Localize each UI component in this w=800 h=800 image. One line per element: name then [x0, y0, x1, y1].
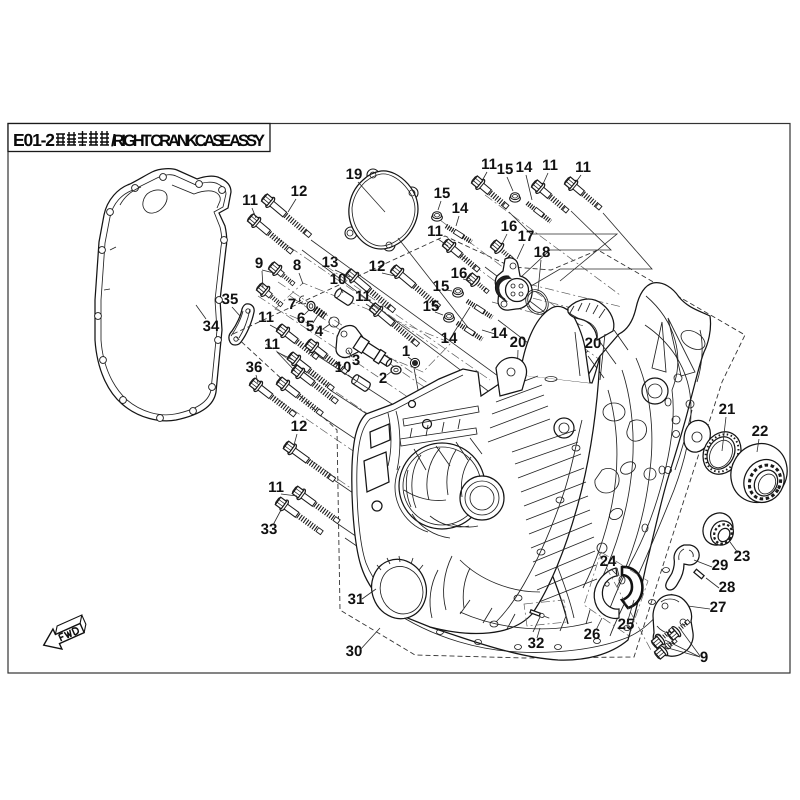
svg-text:12: 12 [291, 183, 308, 200]
svg-text:12: 12 [291, 418, 308, 435]
svg-text:12: 12 [369, 258, 386, 275]
svg-text:29: 29 [712, 557, 729, 574]
svg-text:14: 14 [516, 159, 533, 176]
svg-text:25: 25 [618, 616, 635, 633]
svg-text:11: 11 [575, 159, 591, 176]
svg-text:21: 21 [719, 401, 736, 418]
svg-text:15: 15 [497, 161, 514, 178]
svg-text:7: 7 [288, 296, 296, 313]
svg-text:11: 11 [268, 479, 284, 496]
svg-text:14: 14 [441, 330, 458, 347]
svg-text:32: 32 [528, 635, 545, 652]
svg-text:22: 22 [752, 423, 769, 440]
svg-text:E01-2: E01-2 [13, 130, 55, 150]
svg-text:20: 20 [510, 334, 527, 351]
svg-text:14: 14 [452, 200, 469, 217]
svg-text:17: 17 [518, 228, 535, 245]
svg-text:4: 4 [315, 323, 324, 340]
svg-text:28: 28 [719, 579, 736, 596]
svg-text:19: 19 [346, 166, 363, 183]
svg-text:33: 33 [261, 521, 278, 538]
svg-text:8: 8 [293, 257, 301, 274]
svg-text:11: 11 [258, 309, 274, 326]
svg-text:30: 30 [346, 643, 363, 660]
svg-text:24: 24 [600, 553, 617, 570]
svg-text:34: 34 [203, 318, 220, 335]
svg-text:35: 35 [222, 291, 239, 308]
svg-text:9: 9 [255, 255, 263, 272]
svg-text:13: 13 [322, 254, 339, 271]
svg-text:11: 11 [242, 192, 258, 209]
svg-text:5: 5 [306, 318, 314, 335]
svg-text:15: 15 [434, 185, 451, 202]
svg-text:27: 27 [710, 599, 727, 616]
svg-text:11: 11 [481, 156, 497, 173]
svg-text:6: 6 [297, 310, 305, 327]
svg-text:3: 3 [352, 352, 360, 369]
svg-text:9: 9 [700, 649, 708, 666]
svg-text:10: 10 [330, 271, 347, 288]
svg-text:11: 11 [427, 223, 443, 240]
svg-text:18: 18 [534, 244, 551, 261]
svg-text:2: 2 [379, 370, 387, 387]
svg-text:11: 11 [542, 157, 558, 174]
svg-text:36: 36 [246, 359, 263, 376]
svg-text:/RIGHT CRANKCASE ASSY: /RIGHT CRANKCASE ASSY [111, 132, 265, 150]
svg-text:26: 26 [584, 626, 601, 643]
svg-text:31: 31 [348, 591, 365, 608]
svg-text:11: 11 [264, 336, 280, 353]
svg-text:16: 16 [501, 218, 518, 235]
svg-text:15: 15 [433, 278, 450, 295]
